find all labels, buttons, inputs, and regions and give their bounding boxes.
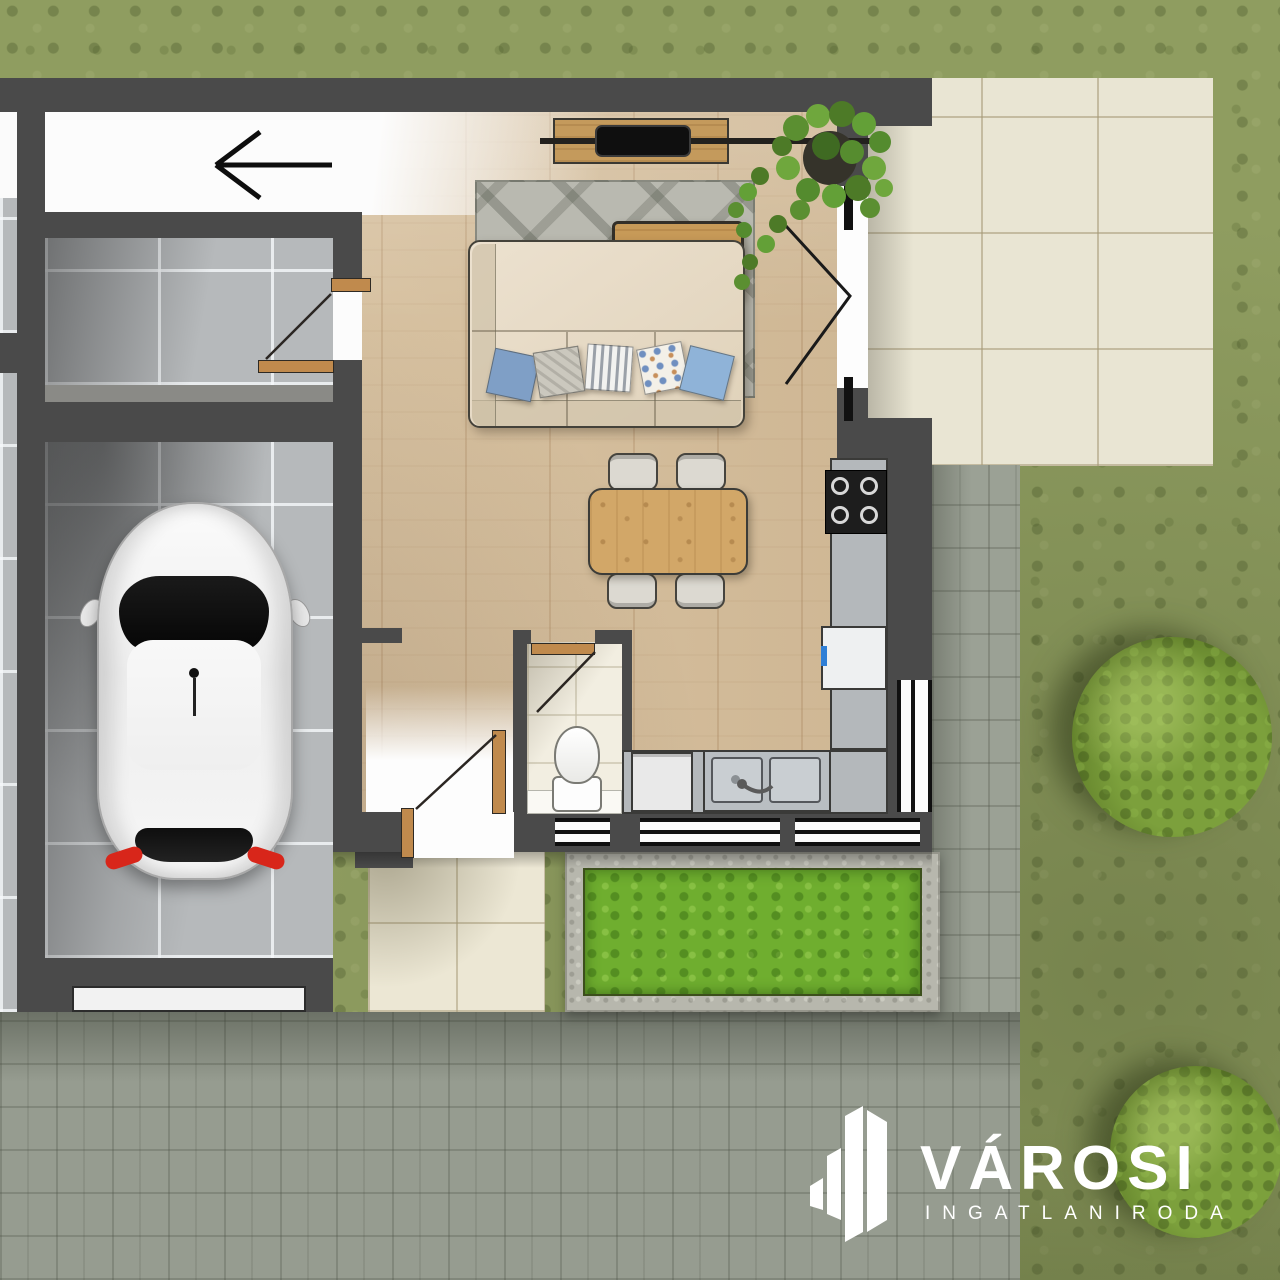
plan-linework [0, 0, 1280, 1280]
floor-plan-render: VÁROSI INGATLANIRODA [0, 0, 1280, 1280]
patio-door-swing [786, 226, 850, 384]
front-door-swing [416, 735, 496, 809]
building-skyline-icon [810, 1106, 890, 1242]
potted-plant [728, 101, 893, 290]
faucet-spout [742, 784, 772, 792]
wc-door-swing [537, 652, 595, 712]
storage-door-swing [266, 294, 331, 359]
entry-arrow-icon [216, 132, 332, 198]
brand-logo: VÁROSI INGATLANIRODA [810, 1100, 1250, 1275]
logo-tagline-text: INGATLANIRODA [925, 1204, 1235, 1223]
tv-screen [596, 126, 690, 156]
logo-brand-text: VÁROSI [920, 1138, 1200, 1200]
